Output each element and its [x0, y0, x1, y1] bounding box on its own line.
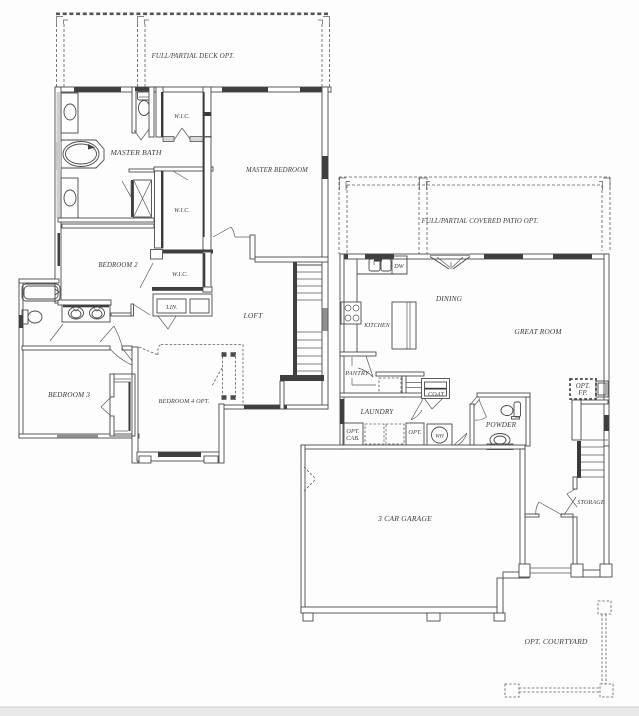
svg-text:MASTER BATH: MASTER BATH: [109, 148, 161, 157]
svg-text:OPT.: OPT.: [346, 428, 359, 435]
svg-text:OPT.: OPT.: [408, 429, 421, 436]
svg-text:LOFT: LOFT: [243, 311, 264, 320]
svg-text:DINING: DINING: [435, 294, 463, 303]
svg-text:FP.: FP.: [577, 390, 588, 397]
svg-text:W.I.C.: W.I.C.: [174, 207, 190, 214]
svg-text:MASTER BEDROOM: MASTER BEDROOM: [245, 167, 308, 174]
svg-text:FULL/PARTIAL COVERED PATIO OPT: FULL/PARTIAL COVERED PATIO OPT.: [421, 218, 539, 225]
svg-text:CAB.: CAB.: [346, 435, 360, 442]
svg-text:W.I.C.: W.I.C.: [172, 271, 188, 278]
svg-text:PANTRY: PANTRY: [344, 370, 370, 377]
svg-text:W.I.C.: W.I.C.: [174, 113, 190, 120]
svg-text:DW: DW: [393, 263, 405, 270]
svg-text:COAT: COAT: [428, 391, 444, 398]
svg-text:KITCHEN: KITCHEN: [363, 323, 391, 329]
svg-text:BEDROOM 3: BEDROOM 3: [48, 390, 90, 399]
svg-text:POWDER: POWDER: [485, 421, 517, 429]
svg-text:3 CAR GARAGE: 3 CAR GARAGE: [377, 514, 432, 523]
svg-text:OPT.: OPT.: [576, 383, 591, 390]
svg-text:BEDROOM 4 OPT.: BEDROOM 4 OPT.: [159, 398, 210, 405]
svg-text:OPT. COURTYARD: OPT. COURTYARD: [524, 637, 587, 646]
svg-text:LIN.: LIN.: [165, 304, 178, 311]
svg-text:LAUNDRY: LAUNDRY: [360, 408, 395, 416]
svg-text:WH: WH: [435, 434, 445, 440]
svg-text:FULL/PARTIAL DECK OPT.: FULL/PARTIAL DECK OPT.: [151, 53, 235, 60]
svg-text:GREAT ROOM: GREAT ROOM: [514, 327, 562, 336]
svg-text:BEDROOM 2: BEDROOM 2: [98, 262, 138, 269]
svg-text:STORAGE: STORAGE: [577, 499, 605, 506]
